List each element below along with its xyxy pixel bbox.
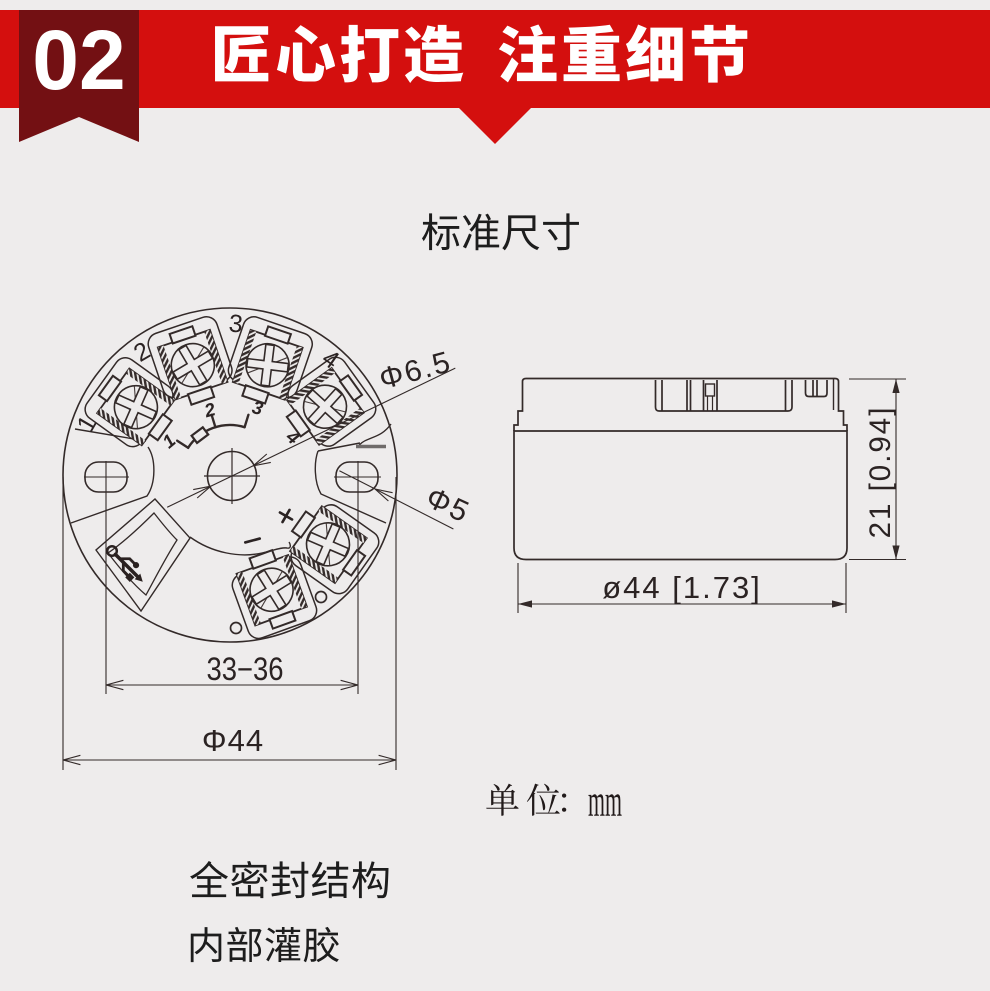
svg-text:21 [0.94]: 21 [0.94]	[864, 406, 897, 539]
svg-text:mm: mm	[588, 775, 622, 826]
svg-text:Φ44: Φ44	[202, 723, 264, 758]
svg-text:02: 02	[32, 13, 125, 107]
svg-text:33−36: 33−36	[207, 651, 284, 687]
svg-text:3: 3	[228, 309, 244, 338]
svg-text:ø44 [1.73]: ø44 [1.73]	[602, 570, 762, 605]
